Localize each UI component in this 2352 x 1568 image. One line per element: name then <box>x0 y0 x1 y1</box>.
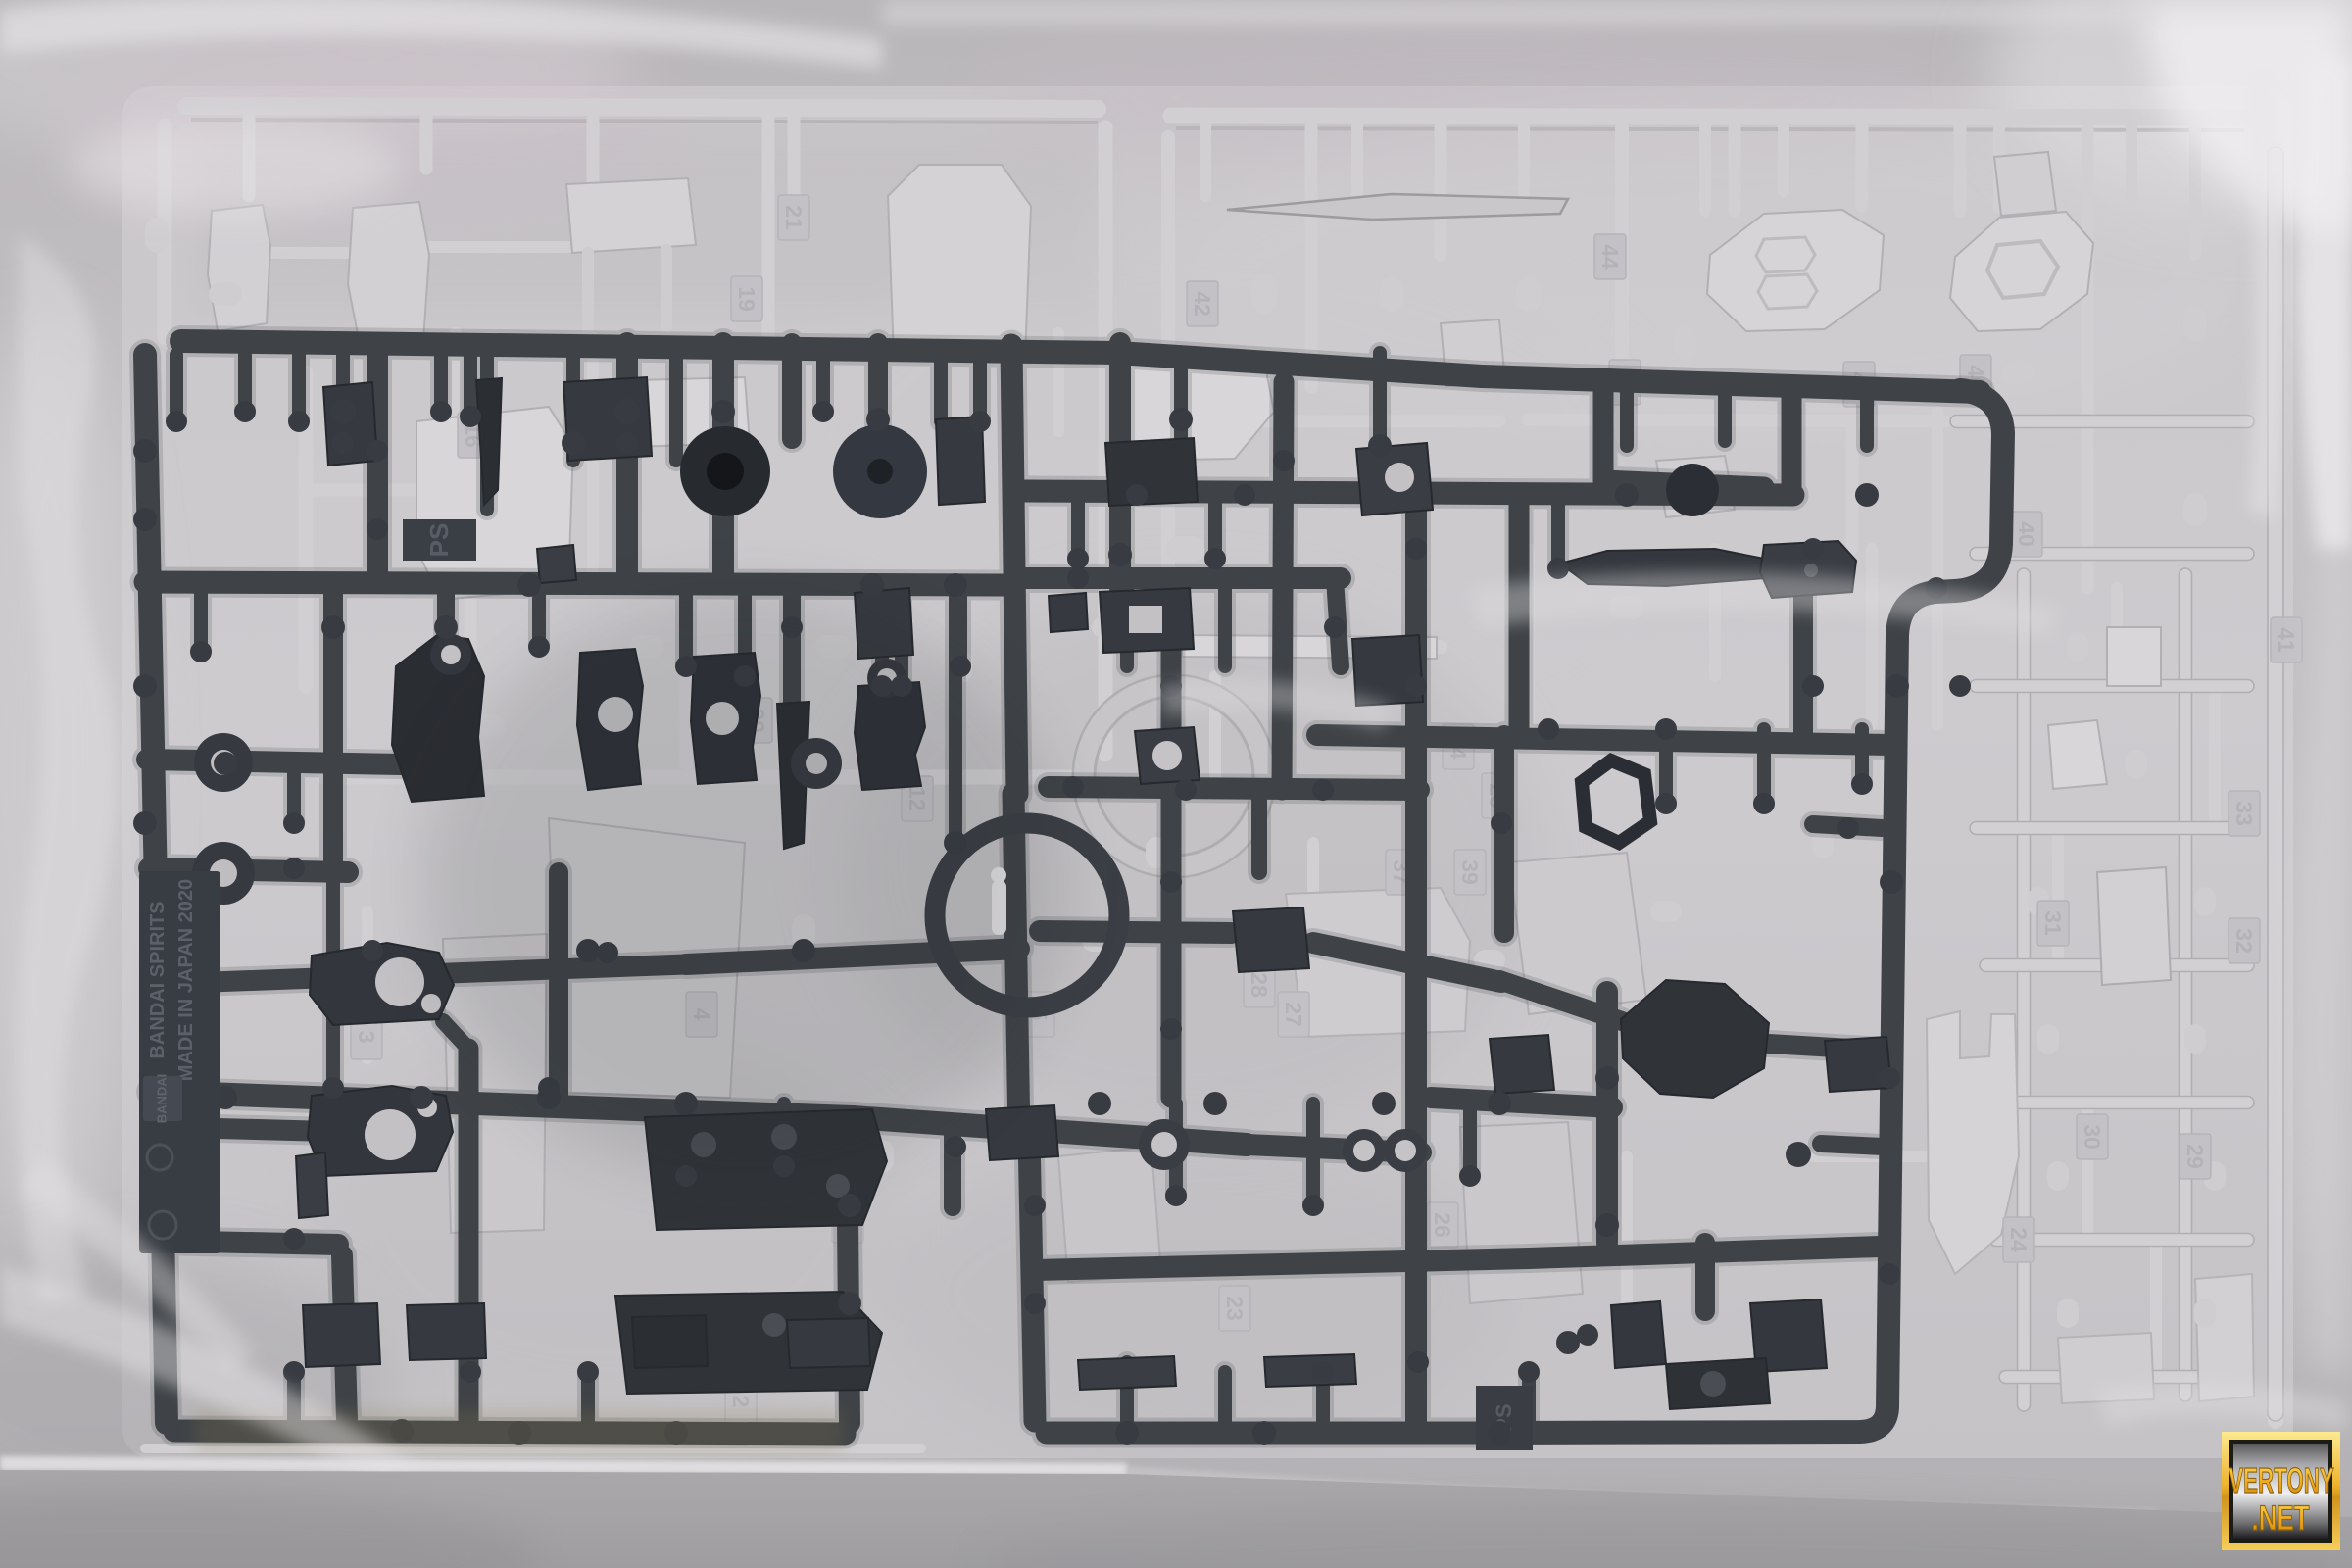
svg-text:BANDAI SPIRITS: BANDAI SPIRITS <box>147 901 169 1058</box>
svg-text:24: 24 <box>2006 1227 2032 1252</box>
svg-text:32: 32 <box>2231 928 2257 954</box>
svg-text:PS: PS <box>424 523 454 558</box>
svg-text:33: 33 <box>2231 801 2257 826</box>
svg-text:30: 30 <box>2080 1124 2105 1150</box>
svg-text:41: 41 <box>2274 627 2299 653</box>
svg-text:40: 40 <box>2014 521 2039 547</box>
svg-text:44: 44 <box>1597 244 1623 269</box>
svg-text:3: 3 <box>354 1031 379 1044</box>
svg-text:.NET: .NET <box>2252 1498 2310 1538</box>
svg-text:2: 2 <box>728 1396 754 1408</box>
svg-text:39: 39 <box>1457 859 1483 885</box>
svg-text:23: 23 <box>1222 1296 1248 1321</box>
svg-text:21: 21 <box>781 205 807 230</box>
svg-text:29: 29 <box>2182 1144 2208 1169</box>
svg-text:BANDAI: BANDAI <box>154 1074 169 1124</box>
svg-text:31: 31 <box>2040 910 2066 936</box>
svg-text:VERTONY: VERTONY <box>2229 1462 2333 1501</box>
svg-text:19: 19 <box>734 286 759 312</box>
svg-text:27: 27 <box>1281 1002 1306 1027</box>
svg-text:26: 26 <box>1430 1212 1455 1238</box>
svg-text:28: 28 <box>1247 972 1272 998</box>
svg-text:MADE IN JAPAN 2020: MADE IN JAPAN 2020 <box>175 879 197 1081</box>
svg-text:42: 42 <box>1190 291 1215 317</box>
